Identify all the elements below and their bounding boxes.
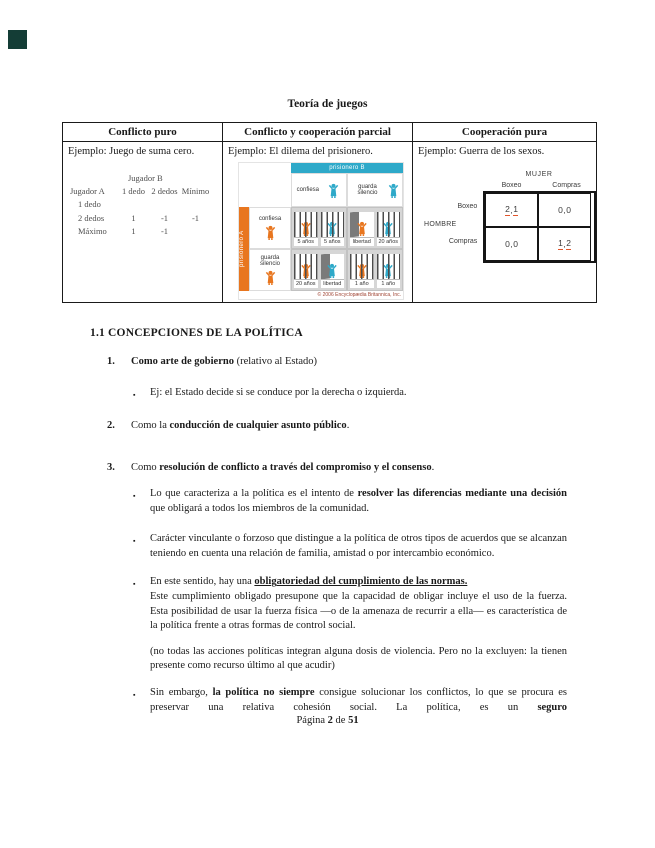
- bos-col-header: Compras: [539, 182, 594, 189]
- corner-mark: [8, 30, 27, 49]
- quadrant-confess-confess: 5 años 5 años: [291, 207, 347, 249]
- zero-sum-col-header: Mínimo: [180, 185, 211, 198]
- bullet-text: Lo que caracteriza a la política es el i…: [150, 487, 567, 516]
- payoff-value: 0: [566, 205, 571, 215]
- row-label-guarda-silencio: guarda silencio: [249, 249, 291, 291]
- text-run: resolución de conflicto a través del com…: [159, 462, 431, 473]
- mini-cell: libertad: [350, 212, 374, 246]
- example-guerra: Ejemplo: Guerra de los sexos.: [418, 145, 591, 159]
- zero-sum-value: [149, 198, 180, 211]
- sentence-label: libertad: [350, 237, 374, 246]
- prisoner-figure-icon: [386, 182, 401, 199]
- text-run: la política no siempre: [213, 687, 315, 698]
- bullet-icon: ▪: [133, 575, 150, 633]
- cell-guerra-sexos: Ejemplo: Guerra de los sexos. MUJER Boxe…: [413, 142, 597, 303]
- item-number: 2.: [107, 419, 131, 434]
- item-number: 1.: [107, 355, 131, 370]
- prisoner-b-header: prisionero B: [291, 163, 403, 173]
- zero-sum-row-label: Máximo: [70, 225, 118, 238]
- item-text: Como resolución de conflicto a través de…: [131, 461, 434, 476]
- row-label-confiesa: confiesa: [249, 207, 291, 249]
- zero-sum-col-header: 1 dedo: [118, 185, 149, 198]
- payoff-value: 1: [513, 204, 518, 216]
- text-run: Como: [131, 462, 159, 473]
- prisoner-figure-icon: [381, 262, 396, 279]
- battle-of-sexes-figure: MUJER Boxeo Compras Boxeo HOMBRE Compras: [424, 171, 596, 263]
- text-run: seguro: [537, 702, 567, 713]
- sentence-label: libertad: [321, 279, 345, 288]
- jail-bars: [321, 212, 345, 237]
- quadrant-confess-silent: libertad 20 años: [347, 207, 403, 249]
- list-item-1: 1. Como arte de gobierno (relativo al Es…: [107, 355, 567, 370]
- games-table-header-row: Conflicto puro Conflicto y cooperación p…: [63, 123, 597, 142]
- bullet-item: ▪ Lo que caracteriza a la política es el…: [133, 487, 567, 516]
- sentence-label: 20 años: [294, 279, 318, 288]
- header-cooperacion-pura: Cooperación pura: [413, 123, 597, 142]
- header-conflicto-puro: Conflicto puro: [63, 123, 223, 142]
- bos-matrix: 2 , 1 0 , 0 0 , 0 1 , 2: [483, 191, 596, 263]
- text-run: conducción de cualquier asunto público: [170, 420, 347, 431]
- prisoner-figure-icon: [325, 220, 340, 237]
- bullet-text: Ej: el Estado decide si se conduce por l…: [150, 386, 567, 403]
- prisoner-figure-icon: [263, 269, 278, 286]
- bos-col-headers: Boxeo Compras: [484, 182, 594, 189]
- zero-sum-table: Jugador B Jugador A 1 dedo 2 dedos Mínim…: [70, 172, 217, 238]
- footer-text: de: [333, 715, 348, 726]
- bullet-item: ▪ Carácter vinculante o forzoso que dist…: [133, 532, 567, 561]
- jail-bars: [377, 212, 401, 237]
- cell-dilema-prisionero: Ejemplo: El dilema del prisionero. prisi…: [223, 142, 413, 303]
- zero-sum-row-label: 1 dedo: [70, 198, 118, 211]
- mini-cell: 1 año: [350, 254, 374, 288]
- text-run: Como la: [131, 420, 170, 431]
- copyright-text: © 2006 Encyclopædia Britannica, Inc.: [318, 292, 401, 298]
- item-text: Como arte de gobierno (relativo al Estad…: [131, 355, 317, 370]
- bullet-item: ▪ Ej: el Estado decide si se conduce por…: [133, 386, 567, 403]
- bullet-item: ▪ En este sentido, hay una obligatorieda…: [133, 575, 567, 633]
- prisoner-figure-icon: [298, 262, 313, 279]
- payoff-cell: 0 , 0: [485, 227, 538, 261]
- sentence-label: 20 años: [377, 237, 401, 246]
- prisoner-figure-icon: [325, 262, 340, 279]
- page-footer: Página 2 de 51: [0, 715, 655, 726]
- zero-sum-row-label: 2 dedos: [70, 212, 118, 225]
- bullet-text: En este sentido, hay una obligatoriedad …: [150, 575, 567, 633]
- prisoners-dilemma-figure: prisionero B confiesa guarda silencio pr…: [238, 162, 404, 300]
- example-suma-cero: Ejemplo: Juego de suma cero.: [68, 145, 217, 159]
- header-conflicto-cooperacion: Conflicto y cooperación parcial: [223, 123, 413, 142]
- bos-col-header: Boxeo: [484, 182, 539, 189]
- zero-sum-value: -1: [180, 212, 211, 225]
- text-run: Lo que caracteriza a la política es el i…: [150, 488, 358, 499]
- item-text: Como la conducción de cualquier asunto p…: [131, 419, 349, 434]
- zero-sum-value: -1: [149, 225, 180, 238]
- bullet-icon: ▪: [133, 487, 150, 516]
- bullet-icon: ▪: [133, 386, 150, 403]
- col-label-text: confiesa: [297, 187, 319, 193]
- bullet-text: Carácter vinculante o forzoso que distin…: [150, 532, 567, 561]
- mini-cell: 20 años: [377, 212, 401, 246]
- jail-bars: [377, 254, 401, 279]
- list-item-3: 3. Como resolución de conflicto a través…: [107, 461, 567, 476]
- list-item-2: 2. Como la conducción de cualquier asunt…: [107, 419, 567, 434]
- zero-sum-value: 1: [118, 212, 149, 225]
- zero-sum-col-header: 2 dedos: [149, 185, 180, 198]
- prisoner-figure-icon: [354, 220, 369, 237]
- text-run: que obligará a todos los miembros de la …: [150, 503, 369, 514]
- col-label-guarda-silencio: guarda silencio: [347, 173, 403, 207]
- item-number: 3.: [107, 461, 131, 476]
- mini-cell: 5 años: [294, 212, 318, 246]
- sentence-label: 5 años: [294, 237, 318, 246]
- payoff-cell-equilibrium: 1 , 2: [538, 227, 591, 261]
- bos-body: Boxeo HOMBRE Compras 2 , 1 0 , 0: [424, 191, 596, 263]
- bos-row-headers: Boxeo HOMBRE Compras: [424, 191, 483, 263]
- text-run: Este cumplimiento obligado presupone que…: [150, 591, 567, 631]
- mini-cell: libertad: [321, 254, 345, 288]
- zero-sum-col-player: Jugador B: [128, 172, 217, 185]
- quadrant-silent-silent: 1 año 1 año: [347, 249, 403, 291]
- jail-bars: [294, 212, 318, 237]
- sentence-label: 5 años: [321, 237, 345, 246]
- text-run: Sin embargo,: [150, 687, 213, 698]
- page-title: Teoría de juegos: [0, 0, 655, 110]
- payoff-value: 0: [513, 239, 518, 249]
- zero-sum-row-player: Jugador A: [70, 185, 118, 198]
- text-run: Como arte de gobierno: [131, 356, 234, 367]
- jail-bars: [350, 254, 374, 279]
- hombre-label: HOMBRE: [424, 221, 457, 228]
- row-label-text: confiesa: [259, 216, 281, 222]
- footer-text: Página: [296, 715, 327, 726]
- text-run: .: [347, 420, 350, 431]
- footer-total-pages: 51: [348, 715, 359, 726]
- row-label-text: guarda silencio: [250, 255, 290, 267]
- section-heading: 1.1 CONCEPCIONES DE LA POLÍTICA: [90, 327, 655, 339]
- prisoner-figure-icon: [381, 220, 396, 237]
- document-page: Teoría de juegos Conflicto puro Conflict…: [0, 0, 655, 848]
- zero-sum-value: 1: [118, 225, 149, 238]
- prisoner-figure-icon: [298, 220, 313, 237]
- prisoner-figure-icon: [263, 224, 278, 241]
- bullet-icon: ▪: [133, 686, 150, 715]
- mini-cell: 1 año: [377, 254, 401, 288]
- bullet-item: ▪ Sin embargo, la política no siempre co…: [133, 686, 567, 715]
- text-run: .: [432, 462, 435, 473]
- zero-sum-row: 1 dedo: [70, 198, 217, 211]
- bullet-text: Sin embargo, la política no siempre cons…: [150, 686, 567, 715]
- col-label-confiesa: confiesa: [291, 173, 347, 207]
- games-table-body-row: Ejemplo: Juego de suma cero. Jugador B J…: [63, 142, 597, 303]
- text-run: obligatoriedad del cumplimiento de las n…: [254, 576, 467, 587]
- zero-sum-value: [180, 198, 211, 211]
- zero-sum-value: [180, 225, 211, 238]
- mini-cell: 20 años: [294, 254, 318, 288]
- text-run: En este sentido, hay una: [150, 576, 254, 587]
- sentence-label: 1 año: [350, 279, 374, 288]
- zero-sum-value: [118, 198, 149, 211]
- parenthetical-paragraph: (no todas las acciones políticas integra…: [150, 645, 567, 674]
- zero-sum-row: 2 dedos 1 -1 -1: [70, 212, 217, 225]
- prisoner-figure-icon: [354, 262, 369, 279]
- bullet-icon: ▪: [133, 532, 150, 561]
- cell-suma-cero: Ejemplo: Juego de suma cero. Jugador B J…: [63, 142, 223, 303]
- prisoner-a-header: prisionero A: [239, 207, 249, 291]
- mini-cell: 5 años: [321, 212, 345, 246]
- sentence-label: 1 año: [377, 279, 401, 288]
- example-dilema: Ejemplo: El dilema del prisionero.: [228, 145, 407, 159]
- payoff-cell: 0 , 0: [538, 193, 591, 227]
- text-run: (relativo al Estado): [234, 356, 317, 367]
- games-table: Conflicto puro Conflicto y cooperación p…: [62, 122, 597, 303]
- payoff-value: 2: [566, 238, 571, 250]
- jail-bars: [294, 254, 318, 279]
- zero-sum-value: -1: [149, 212, 180, 225]
- bos-row-header: Compras: [449, 238, 477, 245]
- bos-row-header: Boxeo: [457, 203, 477, 210]
- col-label-text: guarda silencio: [349, 184, 386, 196]
- zero-sum-header-row: Jugador A 1 dedo 2 dedos Mínimo: [70, 185, 217, 198]
- quadrant-silent-confess: 20 años libertad: [291, 249, 347, 291]
- open-door: [321, 254, 345, 279]
- text-run: resolver las diferencias mediante una de…: [358, 488, 567, 499]
- open-door: [350, 212, 374, 237]
- prisoner-figure-icon: [326, 182, 341, 199]
- mujer-label: MUJER: [484, 171, 594, 178]
- payoff-cell-equilibrium: 2 , 1: [485, 193, 538, 227]
- zero-sum-row: Máximo 1 -1: [70, 225, 217, 238]
